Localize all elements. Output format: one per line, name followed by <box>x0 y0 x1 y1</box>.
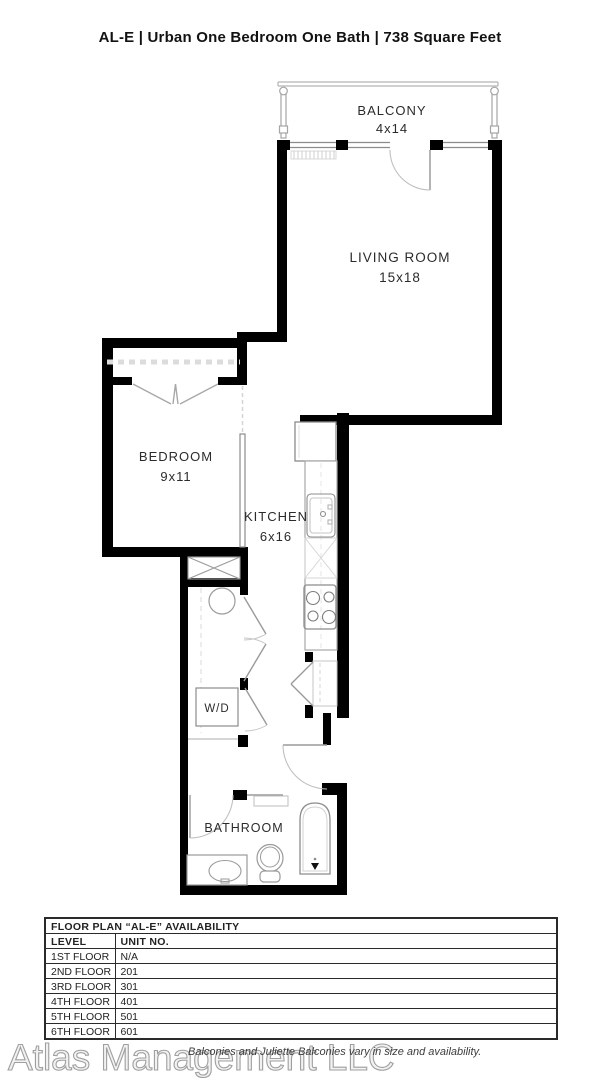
balcony-door <box>390 150 430 190</box>
level-cell: 1ST FLOOR <box>45 949 115 964</box>
living-room-label: LIVING ROOM <box>349 250 450 265</box>
level-cell: 2ND FLOOR <box>45 964 115 979</box>
coat-closet <box>291 661 337 706</box>
balcony-label: BALCONY <box>357 103 426 118</box>
entry-door <box>283 745 327 789</box>
utility-shelf <box>188 557 240 579</box>
baseboard-heater <box>291 151 336 159</box>
floor-plan-page: AL-E | Urban One Bedroom One Bath | 738 … <box>0 0 600 1080</box>
utility-doors <box>244 597 266 681</box>
kitchen-label: KITCHEN <box>244 509 308 524</box>
bedroom-dims: 9x11 <box>160 469 191 484</box>
bathtub <box>300 803 330 874</box>
unit-cell: 201 <box>115 964 557 979</box>
living-room-windows <box>290 143 488 148</box>
water-heater <box>209 588 235 614</box>
col-level: LEVEL <box>45 934 115 949</box>
vanity-sink <box>187 855 247 885</box>
table-header-row: LEVEL UNIT NO. <box>45 934 557 949</box>
unit-cell: N/A <box>115 949 557 964</box>
unit-cell: 501 <box>115 1009 557 1024</box>
table-title-row: FLOOR PLAN “AL-E” AVAILABILITY <box>45 918 557 934</box>
unit-cell: 401 <box>115 994 557 1009</box>
table-row: 2ND FLOOR 201 <box>45 964 557 979</box>
balcony-disclaimer: Balconies and Juliette Balconies vary in… <box>188 1046 481 1058</box>
availability-table: FLOOR PLAN “AL-E” AVAILABILITY LEVEL UNI… <box>44 917 558 1040</box>
level-cell: 4TH FLOOR <box>45 994 115 1009</box>
unit-cell: 301 <box>115 979 557 994</box>
kitchen-dims: 6x16 <box>260 529 292 544</box>
balcony-dims: 4x14 <box>376 121 408 136</box>
company-watermark: Atlas Management LLC <box>8 1037 395 1079</box>
level-cell: 5TH FLOOR <box>45 1009 115 1024</box>
refrigerator <box>295 422 336 461</box>
table-row: 5TH FLOOR 501 <box>45 1009 557 1024</box>
table-row: 1ST FLOOR N/A <box>45 949 557 964</box>
floor-plan-drawing: W/D <box>0 0 600 905</box>
wd-label: W/D <box>204 703 229 715</box>
table-row: 4TH FLOOR 401 <box>45 994 557 1009</box>
col-unit-no: UNIT NO. <box>115 934 557 949</box>
living-room-dims: 15x18 <box>379 270 421 285</box>
kitchen-counter <box>305 461 337 650</box>
bathroom-label: BATHROOM <box>204 821 283 835</box>
washer-dryer: W/D <box>196 688 238 726</box>
table-row: 3RD FLOOR 301 <box>45 979 557 994</box>
wd-door <box>245 688 267 731</box>
bathroom-niche <box>254 796 288 806</box>
level-cell: 3RD FLOOR <box>45 979 115 994</box>
table-title: FLOOR PLAN “AL-E” AVAILABILITY <box>45 918 557 934</box>
toilet <box>257 845 283 883</box>
bedroom-label: BEDROOM <box>139 449 213 464</box>
